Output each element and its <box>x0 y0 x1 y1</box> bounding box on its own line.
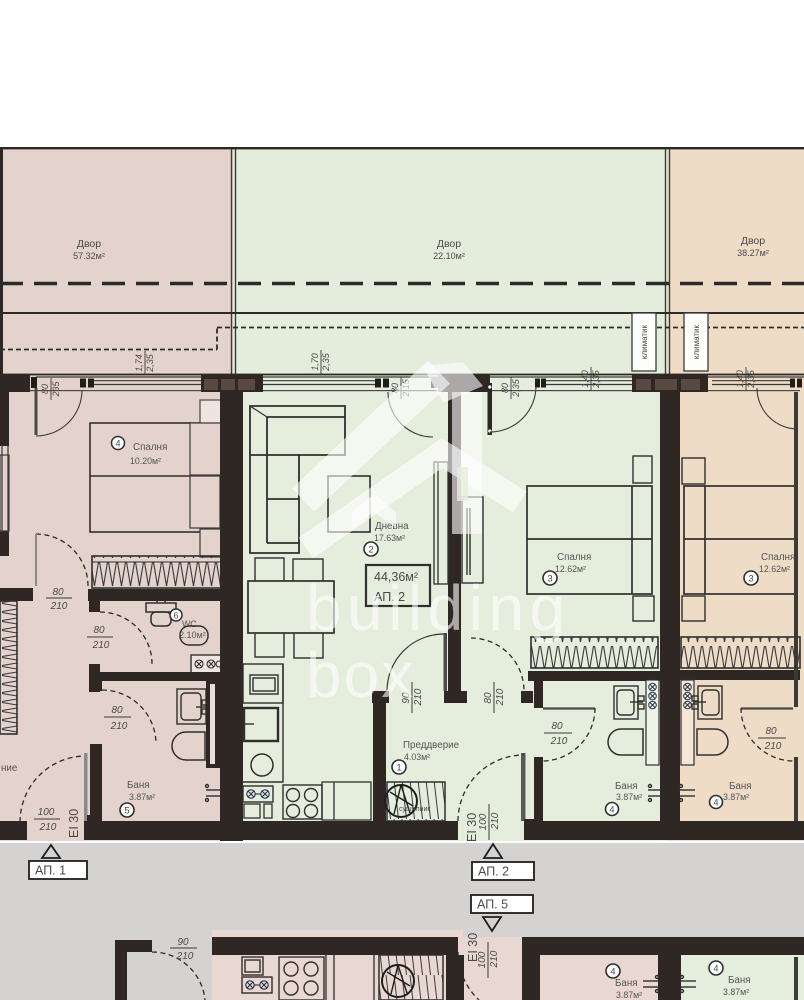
svg-text:2,35: 2,35 <box>145 353 155 373</box>
svg-text:2,35: 2,35 <box>321 352 331 372</box>
svg-text:38.27м²: 38.27м² <box>737 248 769 258</box>
svg-text:2,35: 2,35 <box>746 369 756 389</box>
svg-text:4: 4 <box>610 967 615 977</box>
svg-text:Двор: Двор <box>77 238 101 250</box>
svg-text:building: building <box>306 572 571 644</box>
svg-text:3.87м²: 3.87м² <box>129 792 155 802</box>
svg-text:210: 210 <box>92 640 110 651</box>
svg-text:210: 210 <box>110 721 128 732</box>
svg-text:Двор: Двор <box>741 235 765 247</box>
svg-text:1,74: 1,74 <box>134 354 144 372</box>
svg-text:Преддверие: Преддверие <box>403 740 460 751</box>
svg-text:Спалня: Спалня <box>557 552 591 563</box>
svg-text:80: 80 <box>551 721 563 732</box>
svg-text:Баня: Баня <box>729 781 752 792</box>
svg-text:2: 2 <box>368 545 373 556</box>
svg-text:АП. 5: АП. 5 <box>477 898 508 912</box>
svg-text:3.87м²: 3.87м² <box>723 792 749 802</box>
svg-text:4: 4 <box>713 964 718 974</box>
svg-text:3: 3 <box>748 574 753 585</box>
svg-text:Баня: Баня <box>615 978 638 989</box>
svg-text:80: 80 <box>483 692 494 704</box>
svg-text:10.20м²: 10.20м² <box>130 456 161 466</box>
svg-text:климатик: климатик <box>640 324 649 359</box>
svg-text:80: 80 <box>500 383 510 393</box>
svg-text:Баня: Баня <box>728 975 751 986</box>
svg-text:1,40: 1,40 <box>735 370 745 388</box>
svg-text:Баня: Баня <box>615 781 638 792</box>
svg-text:2,35: 2,35 <box>511 378 521 398</box>
svg-text:100: 100 <box>478 813 489 830</box>
svg-text:EI 30: EI 30 <box>465 813 479 842</box>
svg-text:235: 235 <box>51 381 61 398</box>
svg-text:210: 210 <box>489 950 500 968</box>
svg-text:17.63м²: 17.63м² <box>374 533 405 543</box>
svg-text:2.10м²: 2.10м² <box>179 630 206 640</box>
svg-text:Спалня: Спалня <box>761 552 795 563</box>
svg-text:4.03м²: 4.03м² <box>404 752 430 762</box>
svg-text:EI 30: EI 30 <box>67 809 81 838</box>
svg-text:1,70: 1,70 <box>310 353 320 371</box>
svg-text:80: 80 <box>52 587 64 598</box>
svg-text:210: 210 <box>39 822 57 833</box>
svg-text:6: 6 <box>173 611 178 621</box>
svg-text:box: box <box>306 639 415 711</box>
svg-text:210: 210 <box>550 736 568 747</box>
svg-text:80: 80 <box>93 625 105 636</box>
svg-text:3.87м²: 3.87м² <box>616 792 642 802</box>
svg-text:3.87м²: 3.87м² <box>616 990 642 1000</box>
svg-text:100: 100 <box>477 951 488 968</box>
svg-text:5: 5 <box>124 806 129 817</box>
svg-text:210: 210 <box>50 601 68 612</box>
svg-text:1,40: 1,40 <box>580 370 590 388</box>
svg-text:90: 90 <box>177 937 189 948</box>
svg-text:80: 80 <box>111 705 123 716</box>
svg-text:АП. 1: АП. 1 <box>35 864 66 878</box>
svg-text:80: 80 <box>40 384 50 394</box>
svg-text:Двор: Двор <box>437 238 461 250</box>
svg-text:сушилник: сушилник <box>399 806 431 813</box>
svg-text:12.62м²: 12.62м² <box>759 564 790 574</box>
svg-text:22.10м²: 22.10м² <box>433 251 465 261</box>
svg-text:3.87м²: 3.87м² <box>723 987 749 997</box>
svg-text:Баня: Баня <box>127 780 150 791</box>
svg-text:57.32м²: 57.32м² <box>73 251 105 261</box>
svg-text:210: 210 <box>176 951 194 962</box>
svg-text:1: 1 <box>396 763 401 774</box>
svg-text:4: 4 <box>713 798 718 808</box>
svg-text:210: 210 <box>764 741 782 752</box>
svg-text:4: 4 <box>609 805 614 815</box>
svg-text:2,35: 2,35 <box>591 369 601 389</box>
svg-text:Спалня: Спалня <box>133 442 167 453</box>
svg-text:ние: ние <box>1 763 18 774</box>
svg-text:80: 80 <box>765 726 777 737</box>
svg-text:100: 100 <box>38 807 55 818</box>
svg-text:210: 210 <box>495 688 506 706</box>
svg-text:климатик: климатик <box>692 324 701 359</box>
svg-text:АП. 2: АП. 2 <box>478 865 509 879</box>
svg-text:210: 210 <box>490 812 501 830</box>
svg-text:4: 4 <box>115 439 120 449</box>
